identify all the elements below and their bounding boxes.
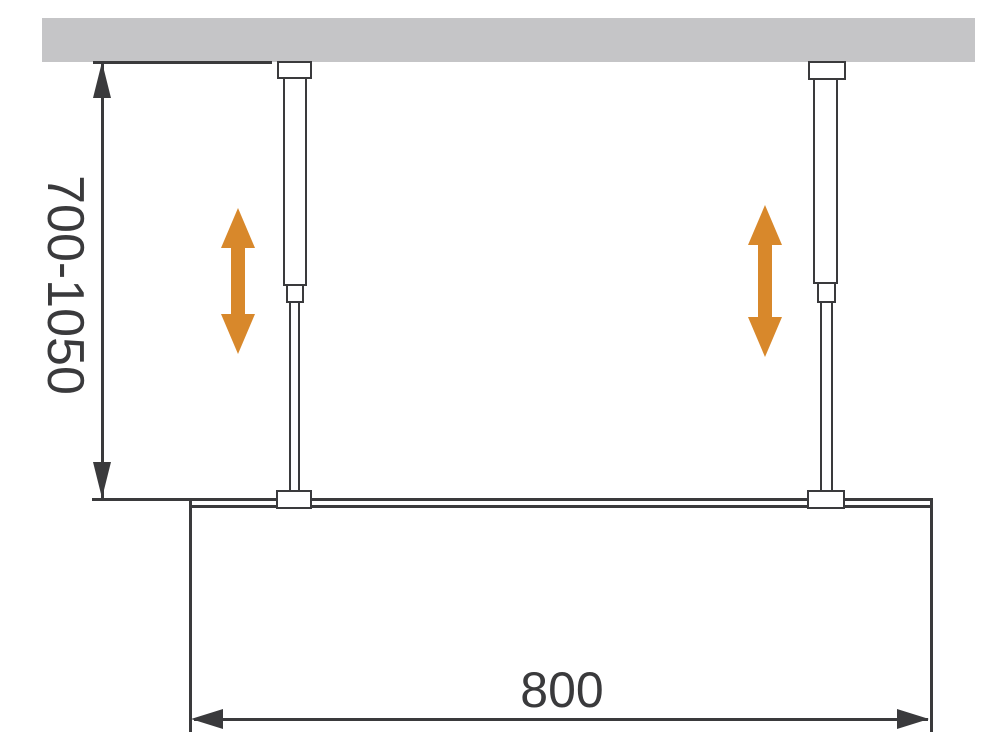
right-adjust-arrow-up-head [748,205,782,245]
left-adjust-arrow-shaft [231,244,245,316]
left-adjust-arrow-down-head [221,314,255,354]
left-adjust-arrow-up-head [221,208,255,248]
glass-panel-left-edge [189,498,192,732]
right-rod-inner-rod [820,301,833,492]
height-dimension-line [101,64,104,498]
height-range-label: 700-1050 [39,165,91,405]
width-label: 800 [482,667,642,713]
glass-panel-right-edge [930,501,933,732]
right-adjust-arrow-down-head [748,317,782,357]
width-dimension-arrow-left-icon [191,709,223,729]
right-adjust-arrow-shaft [758,241,772,317]
left-rod-inner-rod [289,301,300,492]
ceiling-bar [42,18,975,62]
height-dimension-arrow-up-icon [93,62,111,98]
right-rod-collar [817,282,836,303]
height-dimension-arrow-down-icon [93,462,111,498]
width-dimension-line [194,718,928,721]
installation-dimension-diagram: 700-1050 800 [0,0,1000,749]
left-rod-upper-tube [283,77,307,286]
right-rod-upper-tube [813,78,838,284]
height-extension-line-top [93,61,272,64]
left-glass-clamp [276,490,312,509]
width-dimension-arrow-right-icon [897,709,929,729]
right-glass-clamp [807,490,845,509]
